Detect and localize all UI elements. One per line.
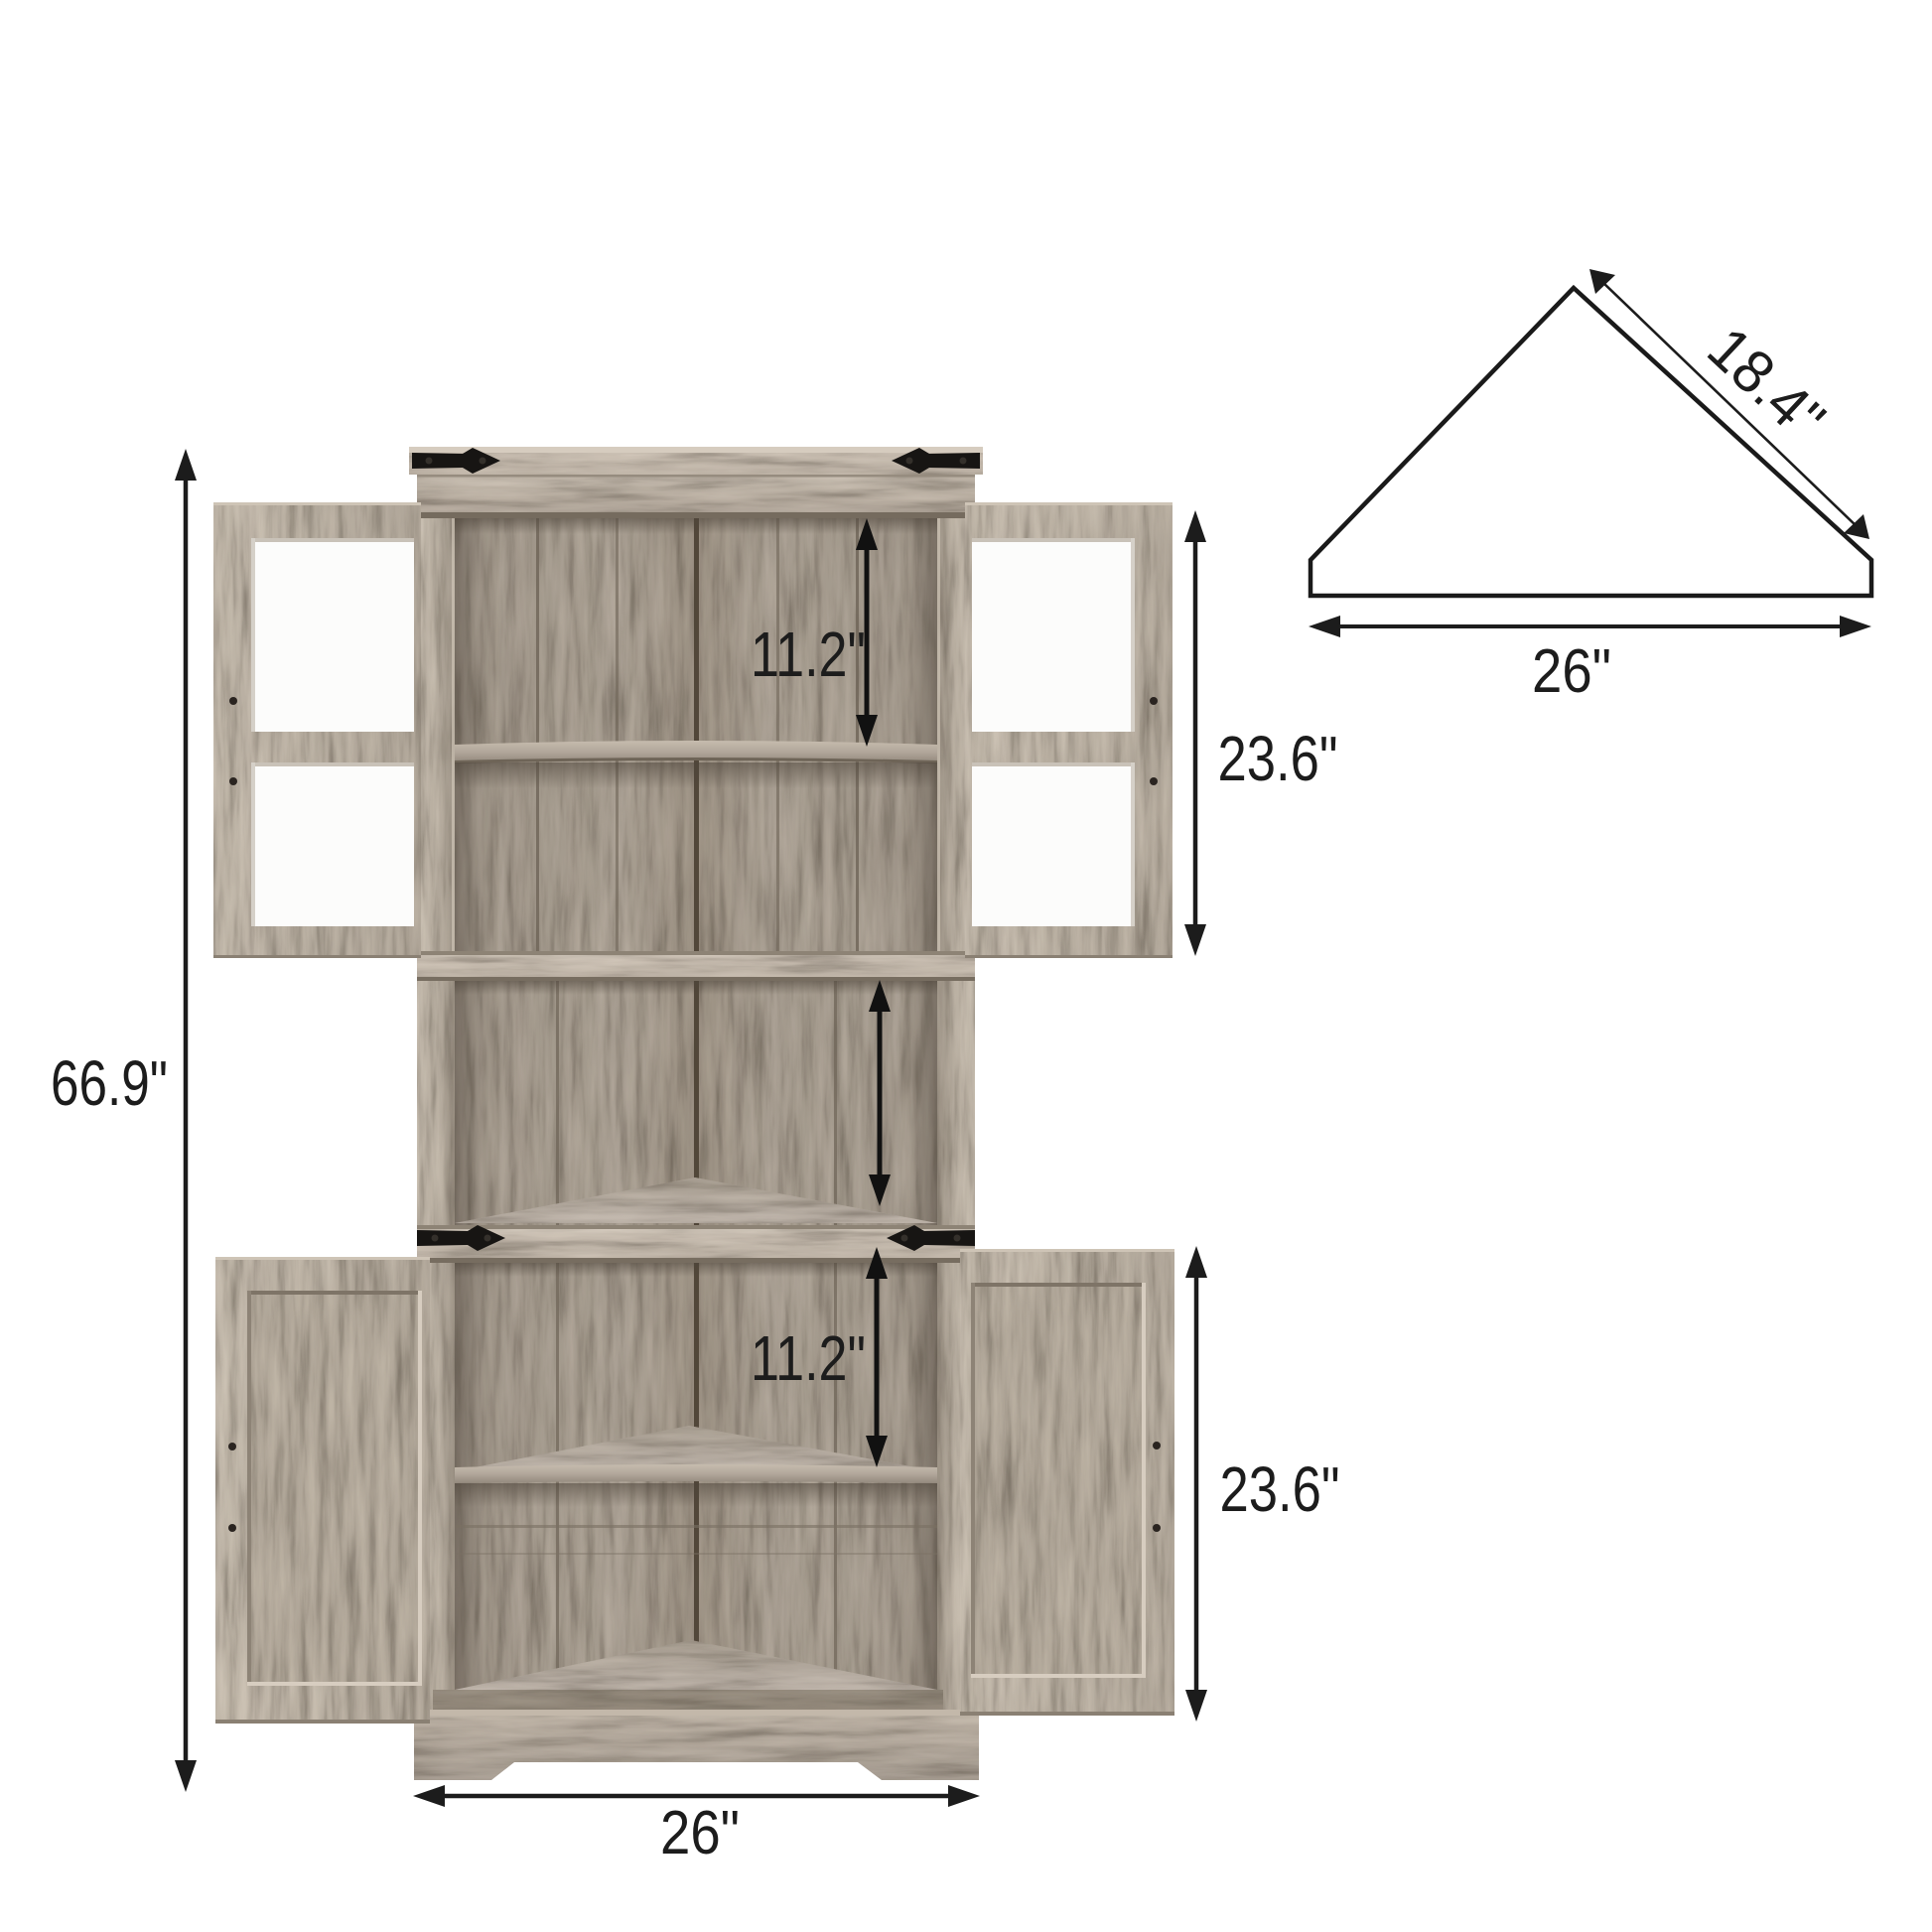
svg-text:66.9": 66.9" xyxy=(51,1047,168,1119)
svg-text:11.2": 11.2" xyxy=(751,1322,866,1394)
svg-text:11.2": 11.2" xyxy=(751,619,866,690)
svg-text:23.6": 23.6" xyxy=(1220,1453,1340,1525)
svg-text:26": 26" xyxy=(660,1799,740,1867)
svg-text:26": 26" xyxy=(1532,637,1611,706)
svg-text:23.6": 23.6" xyxy=(1218,723,1338,794)
